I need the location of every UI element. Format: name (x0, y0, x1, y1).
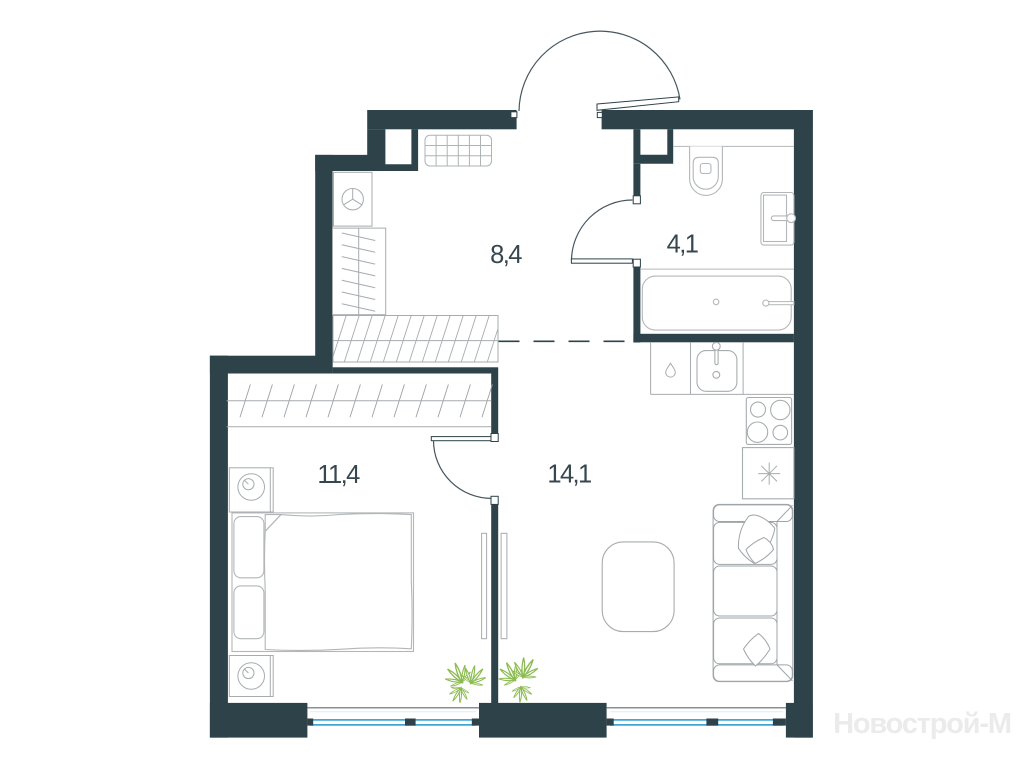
svg-text:11,4: 11,4 (317, 461, 360, 489)
svg-text:14,1: 14,1 (547, 461, 591, 489)
svg-text:4,1: 4,1 (667, 231, 698, 259)
svg-text:Новострой-М: Новострой-М (833, 708, 1011, 740)
svg-text:8,4: 8,4 (490, 241, 522, 269)
